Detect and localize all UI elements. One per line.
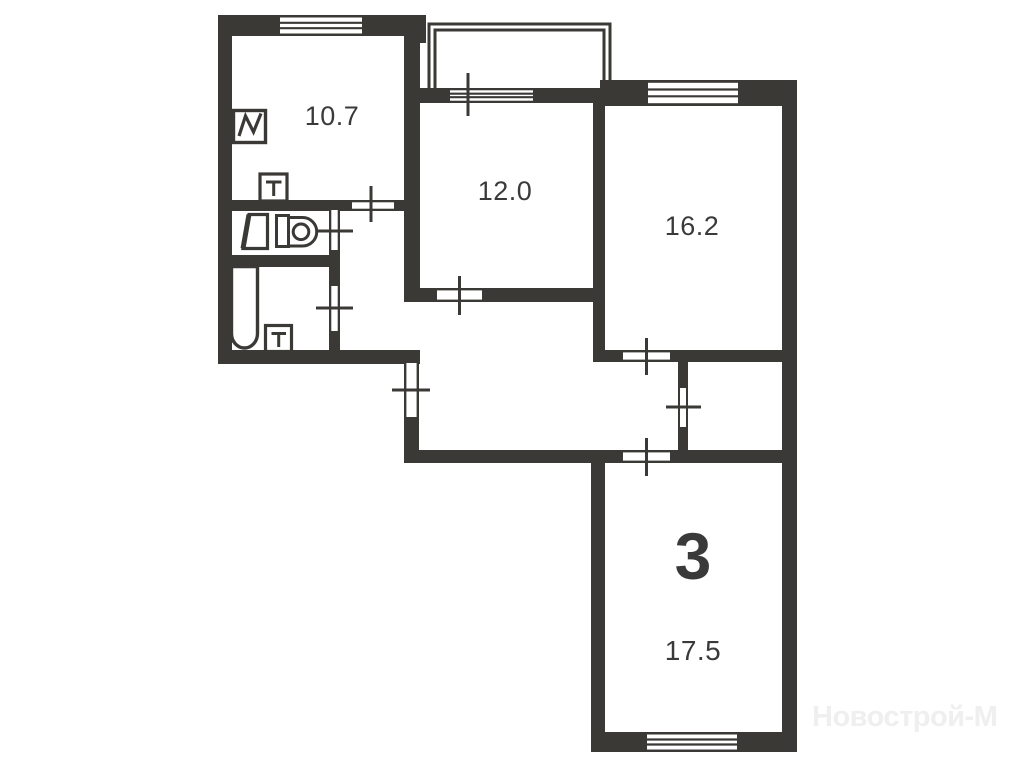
stove-icon [234,111,266,143]
kitchen-window [280,18,362,34]
watermark-text: Новострой-М [812,701,997,734]
floor-plan-drawing [0,0,1013,768]
bathroom-sink-icon [266,326,292,352]
bedroom1-area-label: 12.0 [445,176,565,207]
balcony-outline [429,24,610,92]
bathroom-door-opening [316,286,353,331]
wc-washbasin-icon [243,215,268,249]
floor-plan: 10.7 12.0 16.2 3 17.5 Новострой-М [0,0,1013,768]
entrance-door-opening [392,363,430,417]
apartment-number-label: 3 [633,518,753,594]
living-room-area-label: 17.5 [633,635,753,667]
toilet-icon [277,216,317,247]
living-room-window [647,735,737,750]
bedroom1-door-opening [437,276,482,315]
kitchen-area-label: 10.7 [272,101,392,132]
closet-door-opening [666,388,701,427]
kitchen-sink-icon [260,174,287,201]
bedroom2-area-label: 16.2 [632,211,752,242]
living-room-door-opening [623,438,670,476]
bedroom2-window [648,83,738,103]
wc-door-opening [316,210,353,250]
bedroom2-door-opening [623,338,670,375]
kitchen-door-opening [352,186,394,222]
bathtub-icon [232,267,258,349]
bedroom1-balcony-window [450,73,533,116]
